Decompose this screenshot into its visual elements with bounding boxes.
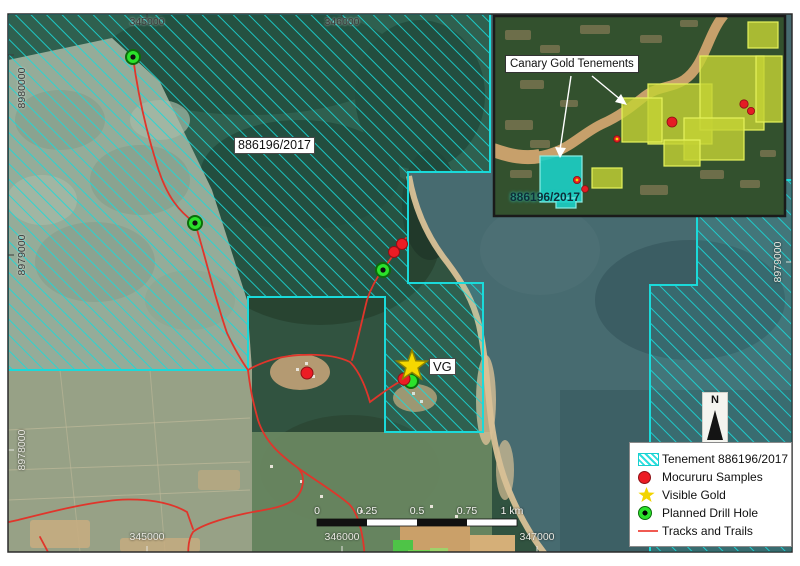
legend-label: Tenement 886196/2017	[662, 452, 788, 466]
grid-label-left-8980000: 8980000	[16, 68, 28, 109]
grid-label-left-8978000: 8978000	[16, 430, 28, 471]
legend-item-samples: Mocururu Samples	[638, 468, 785, 486]
north-arrow-icon	[707, 410, 723, 440]
grid-label-bottom-345000: 345000	[129, 531, 164, 543]
grid-label-left-8979000: 8979000	[16, 235, 28, 276]
sample-dot-icon	[638, 471, 662, 484]
legend-label: Tracks and Trails	[662, 524, 753, 538]
scale-bar	[317, 519, 517, 526]
tenement-swatch-icon	[638, 453, 662, 466]
inset-tenement-label: 886196/2017	[510, 190, 580, 204]
grid-label-bottom-347000: 347000	[519, 531, 554, 543]
drill-hole-icon	[638, 506, 662, 520]
legend-item-tenement: Tenement 886196/2017	[638, 450, 785, 468]
inset-map[interactable]	[493, 15, 785, 216]
legend-item-visible-gold: Visible Gold	[638, 486, 785, 504]
north-arrow-label: N	[711, 393, 719, 407]
scalebar-label-075: 0.75	[457, 505, 477, 517]
grid-label-top-346000: 346000	[324, 16, 359, 28]
grid-label-bottom-346000: 346000	[324, 531, 359, 543]
legend-label: Planned Drill Hole	[662, 506, 758, 520]
visible-gold-label: VG	[429, 358, 456, 375]
inset-callout-label: Canary Gold Tenements	[505, 55, 639, 73]
legend-label: Visible Gold	[662, 488, 726, 502]
track-line-icon	[638, 530, 662, 532]
scalebar-label-05: 0.5	[410, 505, 425, 517]
gold-star-icon	[638, 487, 662, 503]
tenement-label: 886196/2017	[234, 137, 315, 154]
scalebar-label-025: 0.25	[357, 505, 377, 517]
map-document: 886196/2017 VG 345000 346000 345000 3460…	[0, 0, 800, 566]
grid-label-top-345000: 345000	[129, 16, 164, 28]
scalebar-label-0: 0	[314, 505, 320, 517]
farmland	[8, 370, 252, 552]
legend-label: Mocururu Samples	[662, 470, 763, 484]
legend-item-drill-hole: Planned Drill Hole	[638, 504, 785, 522]
grid-label-right-8979000: 8979000	[772, 242, 784, 283]
scalebar-label-1km: 1 km	[501, 505, 524, 517]
legend: Tenement 886196/2017 Mocururu Samples Vi…	[629, 442, 792, 547]
legend-item-tracks: Tracks and Trails	[638, 522, 785, 540]
